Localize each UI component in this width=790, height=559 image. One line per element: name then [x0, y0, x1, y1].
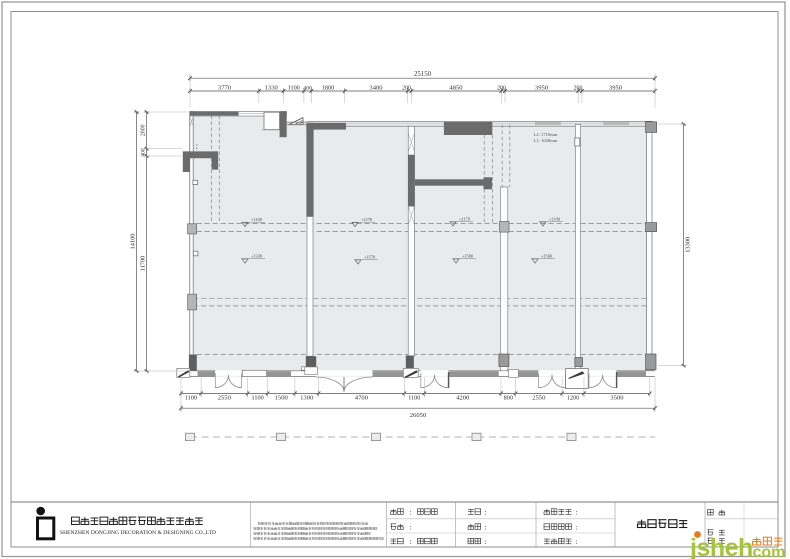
- svg-text:4200: 4200: [456, 395, 470, 402]
- svg-text:SHENZHEN DONGJING DECORATION &: SHENZHEN DONGJING DECORATION & DESIGNING…: [60, 530, 216, 536]
- svg-text:+1270: +1270: [361, 217, 372, 222]
- svg-text:200: 200: [402, 86, 411, 92]
- svg-text:+1100: +1100: [251, 217, 262, 222]
- svg-text::: :: [485, 538, 487, 546]
- svg-text::: :: [410, 538, 412, 546]
- svg-text:3950: 3950: [609, 85, 623, 92]
- svg-text:13300: 13300: [684, 237, 691, 253]
- svg-text:26050: 26050: [410, 412, 427, 419]
- svg-text:200: 200: [497, 86, 506, 92]
- svg-text:3500: 3500: [610, 395, 624, 402]
- svg-text:800: 800: [504, 395, 513, 402]
- svg-text::: :: [410, 523, 412, 531]
- svg-text:+1170: +1170: [459, 217, 470, 222]
- svg-text:2550: 2550: [532, 395, 546, 402]
- svg-text:1500: 1500: [275, 395, 289, 402]
- svg-text:1100: 1100: [288, 85, 300, 92]
- svg-text:4700: 4700: [355, 395, 369, 402]
- svg-text:L2: 1710mm: L2: 1710mm: [534, 132, 558, 137]
- svg-text:25150: 25150: [414, 71, 432, 78]
- svg-text:4850: 4850: [449, 85, 463, 92]
- svg-text::: :: [576, 508, 578, 516]
- svg-text:1100: 1100: [252, 395, 264, 402]
- svg-text:14100: 14100: [130, 234, 137, 250]
- svg-text:200: 200: [574, 86, 583, 92]
- svg-text:.com: .com: [748, 544, 785, 559]
- svg-text:1100: 1100: [408, 395, 420, 402]
- svg-text:1300: 1300: [300, 395, 314, 402]
- svg-text:2000: 2000: [141, 124, 147, 136]
- svg-text:jsheh: jsheh: [689, 534, 753, 559]
- svg-text:400: 400: [303, 86, 312, 92]
- svg-text:2550: 2550: [218, 395, 232, 402]
- svg-text::: :: [485, 508, 487, 516]
- svg-text:+1100: +1100: [549, 217, 560, 222]
- svg-text:1330: 1330: [265, 85, 279, 92]
- svg-text:+1560: +1560: [541, 254, 552, 259]
- svg-text:1800: 1800: [322, 85, 334, 92]
- svg-text:L1: 1020mm: L1: 1020mm: [534, 138, 558, 143]
- svg-text:1200: 1200: [567, 395, 579, 402]
- svg-text::: :: [576, 538, 578, 546]
- svg-text:3950: 3950: [535, 85, 549, 92]
- svg-text:+1580: +1580: [462, 254, 473, 259]
- svg-text:3400: 3400: [369, 85, 383, 92]
- svg-text:1100: 1100: [185, 395, 197, 402]
- svg-text:400: 400: [141, 148, 147, 156]
- svg-text:3770: 3770: [218, 85, 232, 92]
- svg-text::: :: [410, 508, 412, 516]
- svg-text:+1330: +1330: [251, 254, 262, 259]
- svg-text:11700: 11700: [140, 256, 147, 272]
- svg-text::: :: [485, 523, 487, 531]
- svg-text::: :: [576, 523, 578, 531]
- svg-text:+1570: +1570: [364, 255, 375, 260]
